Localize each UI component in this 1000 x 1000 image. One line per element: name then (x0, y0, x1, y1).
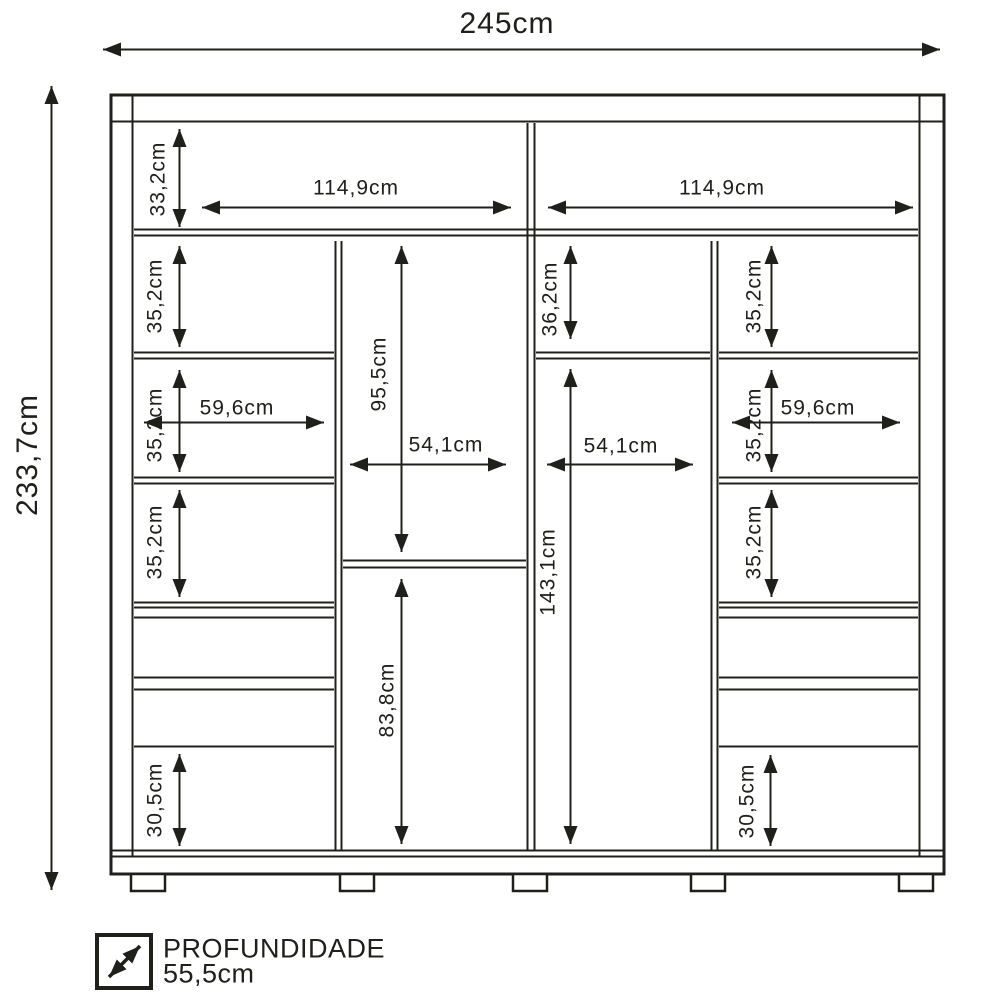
diagonal-arrow-icon (109, 946, 140, 977)
right-shelf2-width-label: 59,6cm (781, 398, 856, 419)
right-bottom-label: 30,5cm (737, 764, 758, 839)
right-shelf3-label: 35,2cm (744, 505, 765, 580)
left-shelf2-label: 35,2cm (145, 388, 166, 463)
mid-right-width-label: 54,1cm (584, 436, 659, 457)
right-shelf1-label: 35,2cm (744, 259, 765, 334)
depth-icon (97, 935, 151, 988)
left-shelf3-label: 35,2cm (145, 505, 166, 580)
total-height-label: 233,7cm (13, 394, 43, 516)
legend-value: 55,5cm (163, 961, 255, 988)
cabinet-feet (131, 874, 933, 891)
left-shelf1-label: 35,2cm (145, 259, 166, 334)
total-width-label: 245cm (459, 9, 554, 39)
mid-right-height-label: 143,1cm (538, 528, 559, 616)
right-shelf2-label: 35,2cm (744, 388, 765, 463)
wardrobe-dimension-diagram: 245cm 233,7cm 33,2cm 114,9cm 114,9cm 35,… (0, 0, 1000, 1000)
mid-left-upper-label: 95,5cm (369, 337, 390, 412)
mid-left-lower-label: 83,8cm (377, 663, 398, 738)
mid-left-width-label: 54,1cm (409, 435, 484, 456)
top-row-height-label: 33,2cm (148, 142, 169, 217)
top-left-width-label: 114,9cm (313, 178, 399, 199)
mid-right-upper-label: 36,2cm (540, 262, 561, 337)
left-bottom-label: 30,5cm (145, 763, 166, 838)
top-right-width-label: 114,9cm (679, 178, 765, 199)
left-shelf2-width-label: 59,6cm (200, 398, 275, 419)
